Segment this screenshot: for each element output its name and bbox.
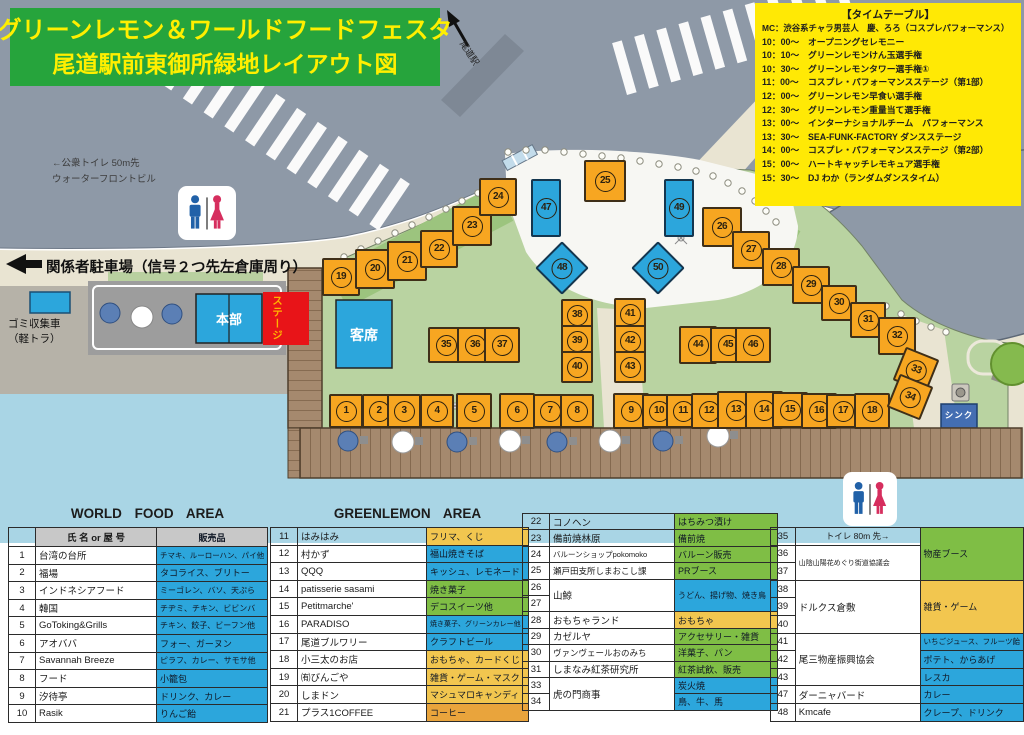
- booth-number-cell: 17: [271, 633, 298, 651]
- table-row: 23備前焼林原備前焼: [523, 530, 778, 546]
- vendor-name-cell: Rasik: [36, 705, 157, 723]
- event-layout-poster: グリーンレモン＆ワールドフードフェスタ 尾道駅前東御所緑地レイアウト図 【タイム…: [0, 0, 1024, 735]
- products-cell: 福山焼きそば: [427, 545, 529, 563]
- greenlemon-area-title: GREENLEMON AREA: [300, 506, 515, 521]
- booth-number-cell: 42: [771, 651, 796, 669]
- products-cell: ドリンク、カレー: [157, 687, 268, 705]
- timetable-entry: 10：10～グリーンレモンけん玉選手権: [762, 49, 1014, 63]
- booth-number-cell: 18: [271, 651, 298, 669]
- booth-number-cell: 31: [523, 661, 550, 677]
- vendor-name-cell: 虎の門商事: [550, 677, 675, 710]
- products-cell: 雑貨・ゲーム・マスク: [427, 668, 529, 686]
- male-figure-icon: [853, 482, 864, 514]
- vendor-name-cell: カゼルヤ: [550, 628, 675, 644]
- booth-number-cell: 22: [523, 514, 550, 530]
- vendor-table: 11はみはみフリマ、くじ12村かず福山焼きそば13QQQキッシュ、レモネード14…: [270, 527, 529, 722]
- timetable-entries: 10：00～オープニングセレモニー10：10～グリーンレモンけん玉選手権10：3…: [762, 36, 1014, 186]
- booth-number-cell: 16: [271, 615, 298, 633]
- table-row: 28おもちゃランドおもちゃ: [523, 612, 778, 628]
- booth-number-cell: 39: [771, 598, 796, 616]
- booth-number-cell: 1: [9, 547, 36, 565]
- booth-number-cell: 27: [523, 595, 550, 611]
- vendor-name-cell: QQQ: [298, 563, 427, 581]
- vendor-name-cell: ヴァンヴェールおのみち: [550, 645, 675, 661]
- vendor-name-cell: バルーンショップpokomoko: [550, 546, 675, 562]
- timetable-entry: 13：00～インターナショナルチーム パフォーマンス: [762, 117, 1014, 131]
- table-row: 47ダーニャバードカレー: [771, 686, 1024, 704]
- products-cell: チマキ、ルーローハン、パイ他: [157, 547, 268, 565]
- products-cell: ポテト、からあげ: [920, 651, 1023, 669]
- products-cell: 焼き菓子、グリーンカレー他: [427, 615, 529, 633]
- vendor-name-cell: コノヘン: [550, 514, 675, 530]
- headquarters-label: 本部: [196, 309, 262, 328]
- products-cell: バルーン販売: [675, 546, 778, 562]
- booth-number-cell: 6: [9, 634, 36, 652]
- table-row: 38ドルクス倉敷雑貨・ゲーム: [771, 580, 1024, 598]
- booth-number-cell: 47: [771, 686, 796, 704]
- tree-icon: [991, 343, 1024, 385]
- vendor-name-cell: インドネシアフード: [36, 582, 157, 600]
- table-row: 9汐待亭ドリンク、カレー: [9, 687, 268, 705]
- staff-parking-label: 関係者駐車場（信号２つ先左倉庫周り）: [46, 256, 307, 277]
- vendor-name-cell: 小三太のお店: [298, 651, 427, 669]
- products-cell: PRブース: [675, 563, 778, 579]
- table-row: 19㈲びんごや雑貨・ゲーム・マスク: [271, 668, 529, 686]
- booth-number-cell: 10: [9, 705, 36, 723]
- vendor-name-cell: プラス1COFFEE: [298, 703, 427, 721]
- table-row: 16PARADISO焼き菓子、グリーンカレー他: [271, 615, 529, 633]
- products-cell: ミーゴレン、バソ、天ぷら: [157, 582, 268, 600]
- vendor-name-cell: ドルクス倉敷: [795, 580, 920, 633]
- booth-number-cell: 23: [523, 530, 550, 546]
- products-cell: はちみつ漬け: [675, 514, 778, 530]
- booth-number-cell: 8: [9, 670, 36, 688]
- sink-fixture-icon: [952, 384, 969, 401]
- products-cell: カレー: [920, 686, 1023, 704]
- table-row: 41尾三物産振興協会いちごジュース、フルーツ飴: [771, 633, 1024, 651]
- booth-number-cell: 19: [271, 668, 298, 686]
- products-cell: フォー、ガーヌン: [157, 634, 268, 652]
- table-row: 4韓国チヂミ、チキン、ビビンバ: [9, 599, 268, 617]
- products-cell: コーヒー: [427, 703, 529, 721]
- garbage-truck-label-line2: （軽トラ）: [8, 331, 61, 346]
- booth-number-cell: 37: [771, 563, 796, 581]
- table-row: 18小三太のお店おもちゃ、カードくじ: [271, 651, 529, 669]
- male-figure-icon: [190, 195, 201, 228]
- booth-number-cell: 25: [523, 563, 550, 579]
- timetable-entry: 14：00～コスプレ・パフォーマンスステージ（第2部）: [762, 144, 1014, 158]
- table-row: 12村かず福山焼きそば: [271, 545, 529, 563]
- table-row: 17尾道ブルワリークラフトビール: [271, 633, 529, 651]
- products-cell: 鳥、牛、馬: [675, 694, 778, 710]
- table-row: 10Rasikりんご飴: [9, 705, 268, 723]
- vendor-table: 22コノヘンはちみつ漬け23備前焼林原備前焼24バルーンショップpokomoko…: [522, 513, 778, 711]
- products-cell: ピラフ、カレー、サモサ他: [157, 652, 268, 670]
- world-food-area-title: WORLD FOOD AREA: [40, 506, 255, 521]
- products-cell: 備前焼: [675, 530, 778, 546]
- vendor-name-cell: しまドン: [298, 686, 427, 704]
- event-title: グリーンレモン＆ワールドフードフェスタ: [0, 14, 452, 48]
- products-cell: フリマ、くじ: [427, 528, 529, 546]
- timetable-entry: 13：30～SEA-FUNK-FACTORY ダンスステージ: [762, 131, 1014, 145]
- booth-number-cell: 34: [523, 694, 550, 710]
- booth-number-cell: 5: [9, 617, 36, 635]
- products-cell: 小籠包: [157, 670, 268, 688]
- products-cell: キッシュ、レモネード: [427, 563, 529, 581]
- products-cell: レスカ: [920, 668, 1023, 686]
- audience-seats-label: 客席: [336, 325, 392, 345]
- products-cell: クレープ、ドリンク: [920, 703, 1023, 721]
- booth-number-cell: 13: [271, 563, 298, 581]
- products-cell: アクセサリー・雑貨: [675, 628, 778, 644]
- garbage-truck-label-line1: ゴミ収集車: [8, 316, 61, 331]
- event-subtitle: 尾道駅前東御所緑地レイアウト図: [53, 48, 398, 80]
- booth-number-cell: 48: [771, 703, 796, 721]
- booth-number-cell: 36: [771, 545, 796, 563]
- public-toilet-note-line1: ←公衆トイレ 50m先: [52, 155, 140, 169]
- booth-number-cell: 14: [271, 580, 298, 598]
- female-figure-icon: [210, 195, 224, 228]
- products-cell: タコライス、ブリトー: [157, 564, 268, 582]
- greenlemon-table: 11はみはみフリマ、くじ12村かず福山焼きそば13QQQキッシュ、レモネード14…: [270, 527, 529, 722]
- timetable-entry: 15：30～DJ わか（ランダムダンスタイム）: [762, 172, 1014, 186]
- booth-number-cell: 11: [271, 528, 298, 546]
- table-row: 29カゼルヤアクセサリー・雑貨: [523, 628, 778, 644]
- vendor-name-cell: 山鯨: [550, 579, 675, 612]
- table-row: 7Savannah Breezeピラフ、カレー、サモサ他: [9, 652, 268, 670]
- booth-number-cell: 12: [271, 545, 298, 563]
- table-row: 26山鯨うどん、揚げ物、焼き鳥: [523, 579, 778, 595]
- vendor-name-cell: PARADISO: [298, 615, 427, 633]
- table-row: 35トイレ 80m 先→物産ブース: [771, 528, 1024, 546]
- vendor-table: 氏 名 or 屋 号販売品1台湾の台所チマキ、ルーローハン、パイ他2福場タコライ…: [8, 527, 268, 723]
- female-figure-icon: [873, 482, 886, 514]
- booth-number-cell: 43: [771, 668, 796, 686]
- timetable-entry: 15：00～ハートキャッチレモキュア選手権: [762, 158, 1014, 172]
- table-row: 3インドネシアフードミーゴレン、バソ、天ぷら: [9, 582, 268, 600]
- vendor-name-cell: Petitmarche': [298, 598, 427, 616]
- vendor-name-cell: 瀬戸田支所しまおこし課: [550, 563, 675, 579]
- products-cell: 炭火焼: [675, 677, 778, 693]
- vendor-name-cell: トイレ 80m 先→: [795, 528, 920, 546]
- products-cell: うどん、揚げ物、焼き鳥: [675, 579, 778, 612]
- products-cell: チキン、餃子、ビーフン他: [157, 617, 268, 635]
- booth-number-cell: 15: [271, 598, 298, 616]
- products-cell: チヂミ、チキン、ビビンバ: [157, 599, 268, 617]
- products-cell: 紅茶試飲、販売: [675, 661, 778, 677]
- products-cell: おもちゃ、カードくじ: [427, 651, 529, 669]
- products-cell: 焼き菓子: [427, 580, 529, 598]
- garbage-truck-box: [30, 292, 70, 313]
- booth-number-cell: 21: [271, 703, 298, 721]
- booth-number-cell: 40: [771, 615, 796, 633]
- products-cell: クラフトビール: [427, 633, 529, 651]
- world-food-table: 氏 名 or 屋 号販売品1台湾の台所チマキ、ルーローハン、パイ他2福場タコライ…: [8, 527, 268, 723]
- booth-number-cell: 20: [271, 686, 298, 704]
- booth-number-cell: 28: [523, 612, 550, 628]
- table-row: 2福場タコライス、ブリトー: [9, 564, 268, 582]
- products-cell: マシュマロキャンディ: [427, 686, 529, 704]
- table-row: 11はみはみフリマ、くじ: [271, 528, 529, 546]
- vendor-name-cell: patisserie sasami: [298, 580, 427, 598]
- products-cell: デコスイーツ他: [427, 598, 529, 616]
- vendor-name-cell: 尾道ブルワリー: [298, 633, 427, 651]
- table-row: 8フード小籠包: [9, 670, 268, 688]
- vendor-name-cell: 尾三物産振興協会: [795, 633, 920, 686]
- booth-number-cell: 29: [523, 628, 550, 644]
- booth-number-cell: 2: [9, 564, 36, 582]
- vendor-name-cell: 台湾の台所: [36, 547, 157, 565]
- public-toilet-note-line2: ウォーターフロントビル: [52, 171, 156, 185]
- vendor-table: 35トイレ 80m 先→物産ブース36山陰山陽花めぐり街道協議会3738ドルクス…: [770, 527, 1024, 722]
- booth-number-cell: 33: [523, 677, 550, 693]
- table-row: 24バルーンショップpokomokoバルーン販売: [523, 546, 778, 562]
- table-row: 33虎の門商事炭火焼: [523, 677, 778, 693]
- stage-label: ステージ: [270, 295, 285, 345]
- booth-number-cell: 4: [9, 599, 36, 617]
- table-row: 21プラス1COFFEEコーヒー: [271, 703, 529, 721]
- booth-number-cell: 35: [771, 528, 796, 546]
- toilet-icon: [178, 186, 236, 240]
- vendor-name-cell: ダーニャバード: [795, 686, 920, 704]
- products-cell: いちごジュース、フルーツ飴: [920, 633, 1023, 651]
- vendor-name-cell: Savannah Breeze: [36, 652, 157, 670]
- vendor-name-cell: GoToking&Grills: [36, 617, 157, 635]
- vendor-name-cell: 福場: [36, 564, 157, 582]
- toilet-icon: [843, 472, 897, 526]
- table-row: 20しまドンマシュマロキャンディ: [271, 686, 529, 704]
- vendor-name-cell: 村かず: [298, 545, 427, 563]
- table-row: 30ヴァンヴェールおのみち洋菓子、パン: [523, 645, 778, 661]
- table-row: 6アオババフォー、ガーヌン: [9, 634, 268, 652]
- booth-number-cell: 30: [523, 645, 550, 661]
- vendor-name-cell: 韓国: [36, 599, 157, 617]
- table-row: 22コノヘンはちみつ漬け: [523, 514, 778, 530]
- booth-number-cell: 9: [9, 687, 36, 705]
- booth-number-cell: 24: [523, 546, 550, 562]
- table-row: 13QQQキッシュ、レモネード: [271, 563, 529, 581]
- products-cell: 物産ブース: [920, 528, 1023, 581]
- title-banner: グリーンレモン＆ワールドフードフェスタ 尾道駅前東御所緑地レイアウト図: [10, 8, 440, 86]
- vendor-name-cell: ㈲びんごや: [298, 668, 427, 686]
- vendor-name-cell: アオババ: [36, 634, 157, 652]
- vendor-table-3: 22コノヘンはちみつ漬け23備前焼林原備前焼24バルーンショップpokomoko…: [522, 513, 778, 711]
- booth-number-cell: 7: [9, 652, 36, 670]
- table-row: 48Kmcafeクレープ、ドリンク: [771, 703, 1024, 721]
- booth-number-cell: 38: [771, 580, 796, 598]
- table-row: 31しまなみ紅茶研究所紅茶試飲、販売: [523, 661, 778, 677]
- table-row: 14patisserie sasami焼き菓子: [271, 580, 529, 598]
- vendor-name-cell: おもちゃランド: [550, 612, 675, 628]
- vendor-name-cell: Kmcafe: [795, 703, 920, 721]
- vendor-name-cell: 汐待亭: [36, 687, 157, 705]
- vendor-name-cell: 山陰山陽花めぐり街道協議会: [795, 545, 920, 580]
- products-cell: 洋菓子、パン: [675, 645, 778, 661]
- timetable-entry: 10：30～グリーンレモンタワー選手権①: [762, 63, 1014, 77]
- products-cell: おもちゃ: [675, 612, 778, 628]
- vendor-name-cell: フード: [36, 670, 157, 688]
- booth-number-cell: 3: [9, 582, 36, 600]
- timetable-panel: 【タイムテーブル】 MC：渋谷系チャラ男芸人 慶、ろろ（コスプレパフォーマンス）…: [755, 3, 1021, 206]
- products-cell: りんご飴: [157, 705, 268, 723]
- sink-label: シンク: [941, 409, 977, 421]
- timetable-heading: 【タイムテーブル】: [762, 8, 1014, 22]
- timetable-entry: 12：30～グリーンレモン重量当て選手権: [762, 104, 1014, 118]
- vendor-table-4: 35トイレ 80m 先→物産ブース36山陰山陽花めぐり街道協議会3738ドルクス…: [770, 527, 1024, 722]
- timetable-entry: 12：00～グリーンレモン早食い選手権: [762, 90, 1014, 104]
- timetable-entry: 10：00～オープニングセレモニー: [762, 36, 1014, 50]
- booth-number-cell: 26: [523, 579, 550, 595]
- table-row: 25瀬戸田支所しまおこし課PRブース: [523, 563, 778, 579]
- vendor-name-cell: 備前焼林原: [550, 530, 675, 546]
- vendor-name-cell: はみはみ: [298, 528, 427, 546]
- vendor-name-cell: しまなみ紅茶研究所: [550, 661, 675, 677]
- products-cell: 雑貨・ゲーム: [920, 580, 1023, 633]
- table-row: 1台湾の台所チマキ、ルーローハン、パイ他: [9, 547, 268, 565]
- timetable-mc-line: MC：渋谷系チャラ男芸人 慶、ろろ（コスプレパフォーマンス）: [762, 22, 1014, 36]
- booth-number-cell: 41: [771, 633, 796, 651]
- timetable-entry: 11：00～コスプレ・パフォーマンスステージ（第1部）: [762, 76, 1014, 90]
- table-row: 5GoToking&Grillsチキン、餃子、ビーフン他: [9, 617, 268, 635]
- table-row: 15Petitmarche'デコスイーツ他: [271, 598, 529, 616]
